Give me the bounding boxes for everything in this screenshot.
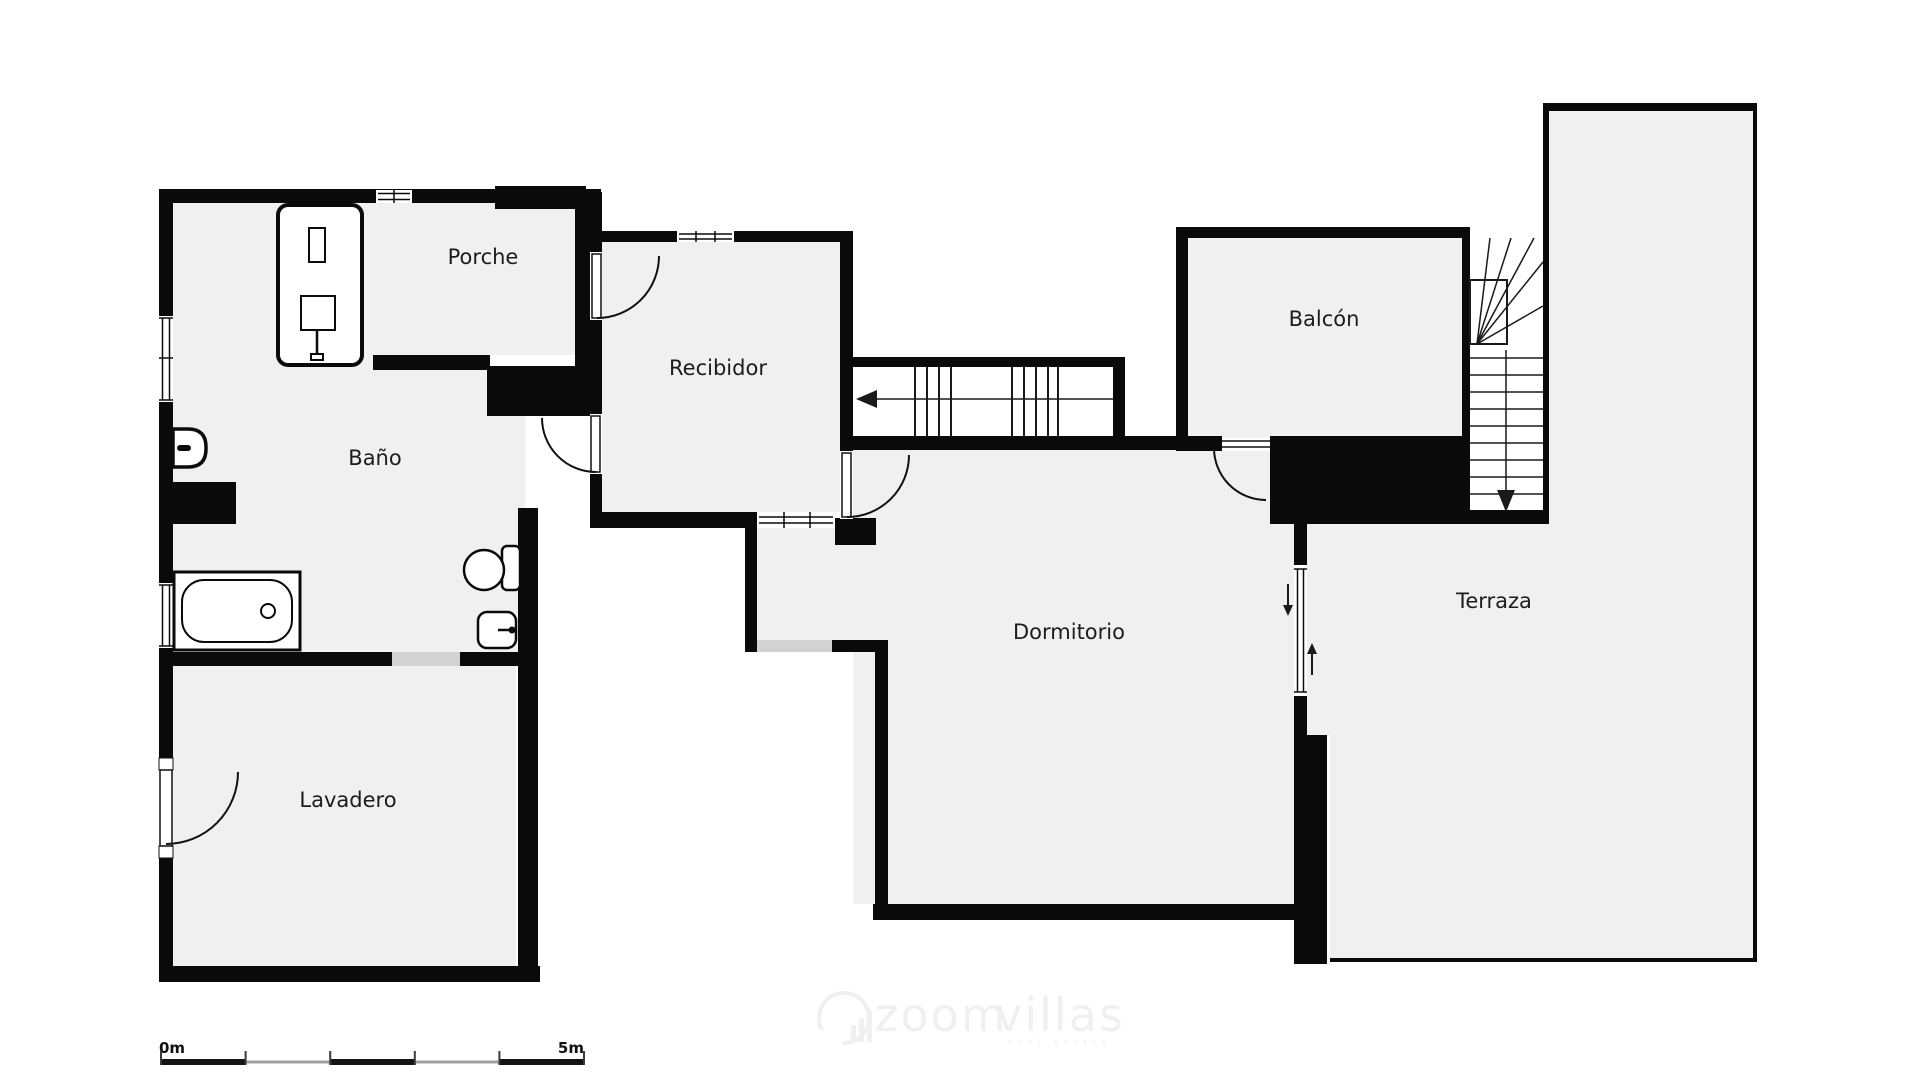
wall-corner-se	[835, 518, 876, 545]
watermark-brand-right: villas	[995, 988, 1125, 1042]
wall-top-bump	[495, 186, 586, 209]
balcon-floor	[1188, 238, 1462, 438]
porche-floor	[373, 201, 575, 355]
shower-icon	[278, 205, 362, 365]
dormitorio-floor	[853, 450, 1295, 904]
sill-bano-lavadero	[392, 652, 460, 666]
bidet-icon	[478, 612, 516, 648]
wall-terraza-west-high	[1543, 103, 1549, 524]
scale-start-label: 0m	[159, 1039, 185, 1057]
window-icon-recibidor-top	[677, 231, 734, 242]
watermark-tagline: real estate	[1008, 1038, 1111, 1048]
wall-band-below-balcon	[1270, 436, 1470, 524]
edge-terraza-south	[1330, 958, 1757, 962]
lavadero-floor	[173, 666, 516, 968]
scale-seg-5	[499, 1059, 584, 1065]
wall-dormitorio-south	[873, 904, 1316, 920]
floor-plan-drawing: Baño Porche Recibidor Balcón Dormitorio …	[0, 0, 1920, 1080]
bar-chart-circle-icon	[818, 993, 872, 1046]
toilet-icon	[464, 546, 520, 590]
wall-chunk-west	[159, 482, 236, 524]
bathtub-icon	[174, 572, 300, 650]
wall-recibidor-south	[590, 512, 757, 528]
window-icon-terraza-link	[1294, 565, 1307, 696]
arrow-left-icon	[856, 390, 877, 408]
wall-dormitorio-west	[875, 652, 888, 904]
room-label-dormitorio: Dormitorio	[1013, 620, 1125, 644]
room-label-terraza: Terraza	[1455, 589, 1532, 613]
watermark-brand-left: zoom	[874, 988, 1007, 1042]
wall-terraza-top	[1543, 103, 1757, 111]
scale-end-label: 5m	[558, 1039, 584, 1057]
edge-terraza-east	[1753, 103, 1757, 962]
wall-balcon-east	[1462, 238, 1470, 451]
wall-recibidor-west-low	[590, 470, 602, 516]
wall-south-lavadero	[159, 966, 540, 982]
wall-balcon-south-a	[1188, 438, 1222, 451]
wall-stairs-bottom	[1470, 510, 1549, 524]
room-label-recibidor: Recibidor	[669, 356, 767, 380]
window-icon-west-upper	[159, 316, 173, 402]
window-icon-west-bano	[159, 583, 173, 648]
wall-step	[745, 528, 757, 652]
wall-bano-lavadero	[159, 652, 538, 666]
room-label-bano: Baño	[348, 446, 401, 470]
window-icon-porche-top	[376, 190, 412, 203]
scale-seg-4	[415, 1061, 500, 1064]
stairs-icon-winder	[1470, 238, 1543, 494]
wall-dormitorio-north	[853, 436, 1222, 450]
room-label-balcon: Balcón	[1289, 307, 1360, 331]
door-swing-icon-recibidor-bano	[542, 414, 602, 474]
wall-balcon-west	[1176, 227, 1188, 451]
sink-icon	[173, 429, 206, 467]
window-icon-notch-south	[757, 512, 835, 528]
arrow-down-icon-stairs	[1497, 490, 1515, 512]
watermark: zoom villas real estate	[818, 988, 1125, 1048]
wall-terraza-west-low	[1294, 735, 1327, 964]
room-label-porche: Porche	[448, 245, 519, 269]
scale-seg-3	[330, 1059, 415, 1065]
wall-west-1	[159, 189, 173, 318]
wall-corridor-top	[853, 357, 1125, 367]
scale-seg-1	[161, 1059, 246, 1065]
wall-east-lavadero	[518, 666, 538, 982]
wall-balcon-top	[1176, 227, 1470, 238]
room-label-lavadero: Lavadero	[299, 788, 396, 812]
scale-bar: 0m 5m	[159, 1039, 585, 1065]
floorplan-page: Baño Porche Recibidor Balcón Dormitorio …	[0, 0, 1920, 1080]
scale-seg-2	[246, 1061, 331, 1064]
room-floors	[173, 111, 1753, 968]
sill-bump-south	[757, 640, 832, 652]
wall-east-bano	[518, 508, 538, 666]
wall-porche-south	[373, 355, 490, 370]
wall-recibidor-east	[840, 231, 853, 455]
stairs-icon-corridor	[874, 367, 1113, 436]
wall-west-4	[159, 854, 173, 970]
